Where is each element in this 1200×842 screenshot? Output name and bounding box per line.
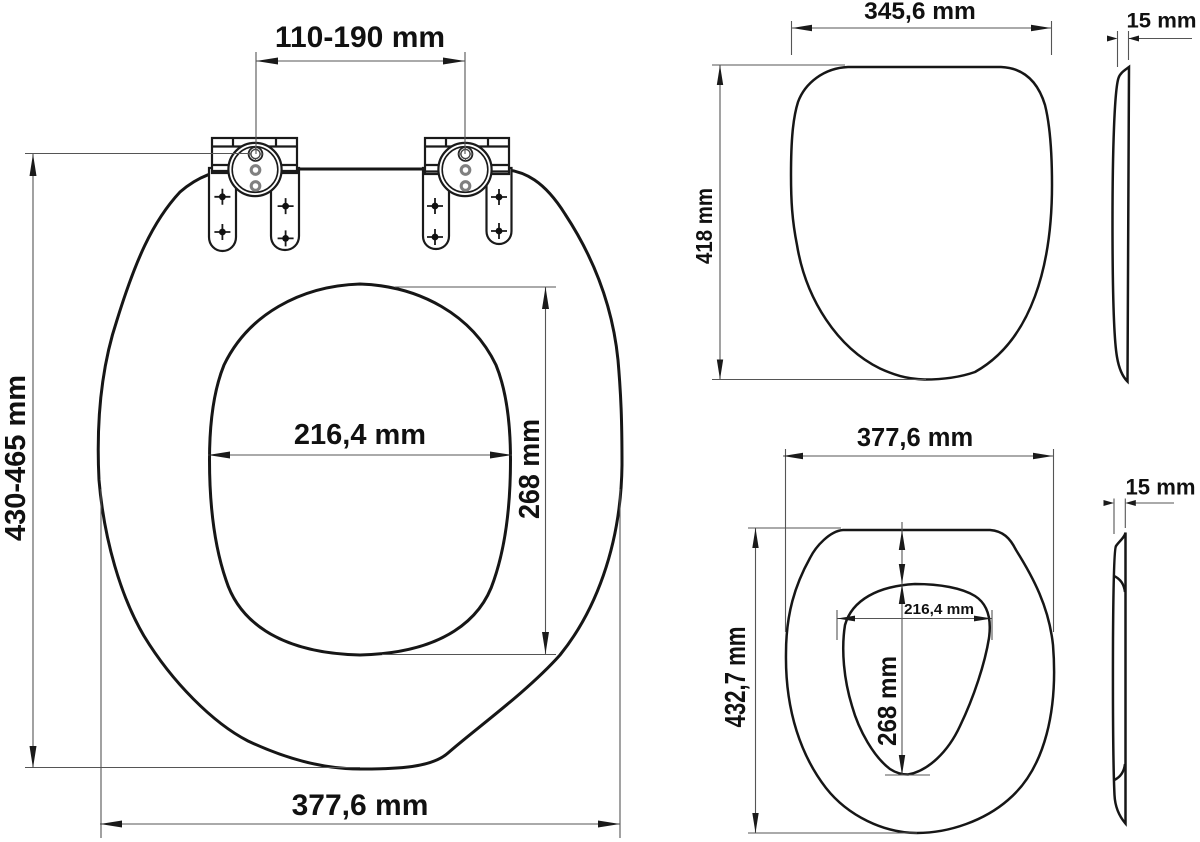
svg-text:268 mm: 268 mm bbox=[514, 419, 546, 519]
svg-text:110-190 mm: 110-190 mm bbox=[275, 21, 445, 54]
svg-text:418 mm: 418 mm bbox=[691, 188, 717, 264]
svg-text:216,4 mm: 216,4 mm bbox=[294, 419, 426, 451]
svg-text:377,6 mm: 377,6 mm bbox=[292, 789, 429, 822]
svg-text:377,6 mm: 377,6 mm bbox=[857, 424, 973, 452]
svg-text:345,6 mm: 345,6 mm bbox=[864, 0, 976, 25]
svg-text:216,4 mm: 216,4 mm bbox=[904, 601, 974, 618]
svg-text:15 mm: 15 mm bbox=[1127, 10, 1197, 33]
svg-text:15 mm: 15 mm bbox=[1126, 475, 1196, 500]
svg-text:268 mm: 268 mm bbox=[872, 656, 902, 746]
svg-text:430-465 mm: 430-465 mm bbox=[0, 375, 32, 541]
svg-text:432,7 mm: 432,7 mm bbox=[720, 627, 752, 728]
